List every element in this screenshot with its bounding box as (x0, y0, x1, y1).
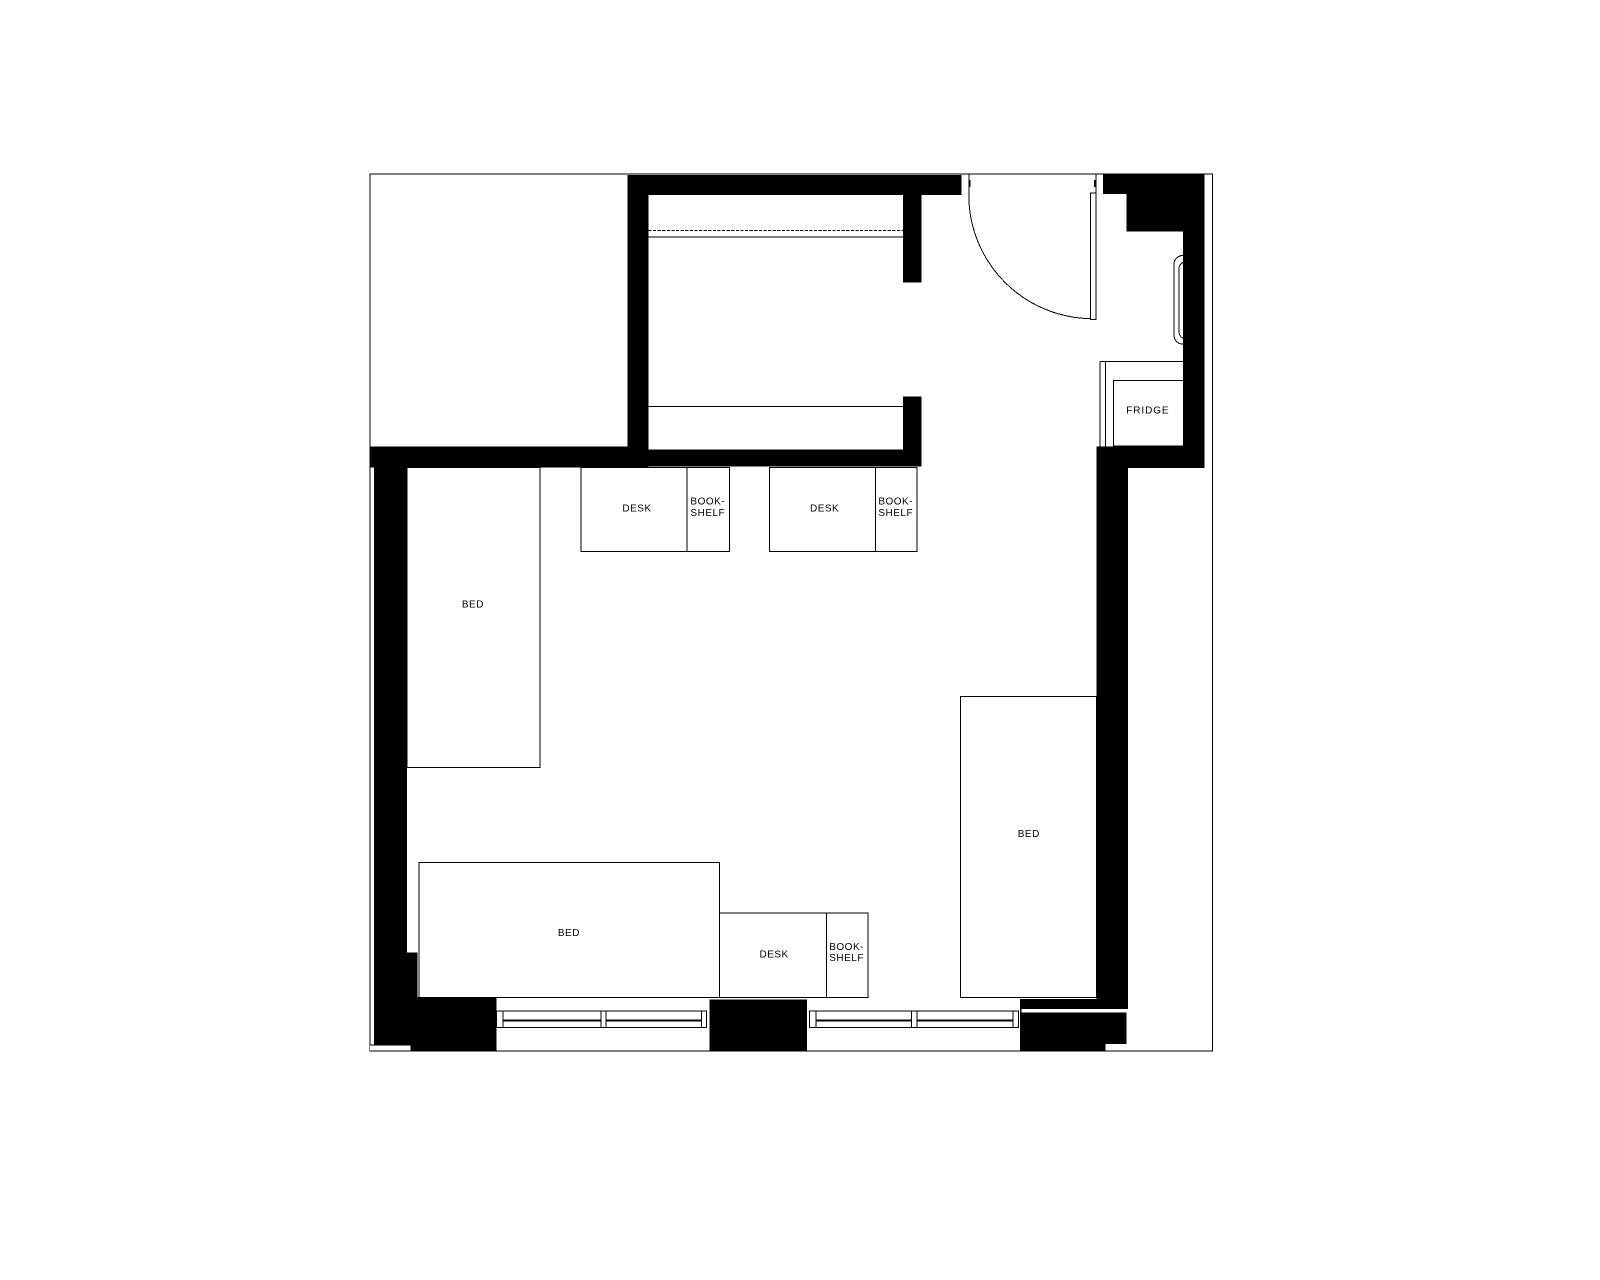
svg-text:DESK: DESK (759, 949, 788, 960)
svg-text:BOOK-: BOOK- (878, 496, 913, 507)
svg-text:SHELF: SHELF (690, 508, 725, 519)
svg-text:DESK: DESK (622, 503, 651, 514)
svg-text:FRIDGE: FRIDGE (1126, 406, 1169, 417)
svg-text:BED: BED (558, 928, 580, 939)
svg-text:BOOK-: BOOK- (690, 496, 725, 507)
svg-text:SHELF: SHELF (829, 953, 864, 964)
svg-text:BED: BED (462, 600, 484, 611)
svg-text:BED: BED (1018, 829, 1040, 840)
svg-text:BOOK-: BOOK- (829, 942, 864, 953)
svg-text:SHELF: SHELF (878, 508, 913, 519)
svg-text:DESK: DESK (810, 503, 839, 514)
